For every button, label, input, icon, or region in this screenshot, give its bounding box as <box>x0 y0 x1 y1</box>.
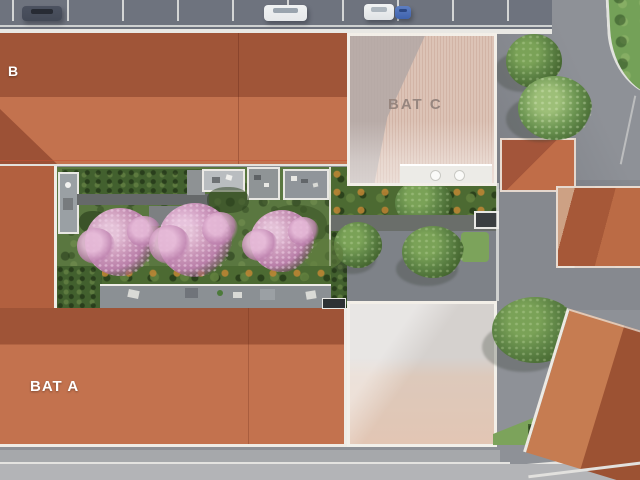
patio-furniture <box>233 292 242 298</box>
patio-furniture <box>212 177 220 183</box>
car-windshield <box>399 9 408 13</box>
building-a-label: BAT A <box>30 378 79 395</box>
patio-furniture <box>301 179 308 183</box>
patio-table <box>430 170 441 181</box>
car-white <box>264 5 307 21</box>
patio-furniture <box>254 175 261 180</box>
terrace-strip <box>100 284 331 308</box>
patio-furniture <box>225 174 232 180</box>
roof-seam <box>248 308 249 444</box>
blossom-tree <box>85 208 155 276</box>
terrace <box>247 167 280 200</box>
car-windshield <box>371 7 388 12</box>
roof-hip-highlight <box>350 304 494 444</box>
patio-furniture <box>313 183 319 188</box>
terrace <box>58 172 79 234</box>
potted-plant <box>217 290 223 296</box>
patio-furniture <box>63 198 73 210</box>
terrace <box>283 169 329 200</box>
patio-furniture <box>291 176 297 181</box>
eave-line <box>0 160 347 161</box>
car-windshield <box>31 9 53 14</box>
ghost-terrace <box>400 164 492 183</box>
patio-table <box>65 182 71 188</box>
patio-table <box>454 170 465 181</box>
hedge-top <box>62 169 202 195</box>
blossom-tree <box>250 210 314 272</box>
neighbor-roof <box>500 138 576 192</box>
roof-seam <box>238 33 239 164</box>
building-c-ghost-roof[interactable]: BAT C <box>347 33 497 186</box>
neighbor-roof <box>556 186 640 268</box>
patio-furniture <box>260 289 275 300</box>
courtyard-garden <box>57 167 331 308</box>
blossom-tree <box>158 203 232 277</box>
patio-furniture <box>127 289 139 299</box>
lawn-patch <box>461 232 489 262</box>
building-c-label: BAT C <box>388 96 443 113</box>
patio-furniture <box>185 288 198 298</box>
road <box>0 464 640 480</box>
patio-furniture <box>264 183 269 187</box>
patio-furniture <box>305 290 316 300</box>
car-blue <box>395 6 411 19</box>
boundary-line <box>496 183 499 301</box>
roof-vent <box>322 298 346 309</box>
building-b-roof[interactable]: B <box>0 33 347 166</box>
tree <box>402 226 464 278</box>
site-plan-scene: BAT C B <box>0 0 640 480</box>
car-white-2 <box>364 4 394 20</box>
car-dark-gray <box>22 6 62 21</box>
building-c-ghost-roof-lower[interactable] <box>347 301 497 447</box>
roof-hip <box>0 109 57 164</box>
west-wing-roof <box>0 166 57 308</box>
car-windshield <box>273 8 297 13</box>
building-b-label: B <box>8 63 19 79</box>
garden-corner <box>57 266 102 308</box>
building-a-roof[interactable]: BAT A <box>0 308 347 447</box>
tree <box>518 76 592 140</box>
